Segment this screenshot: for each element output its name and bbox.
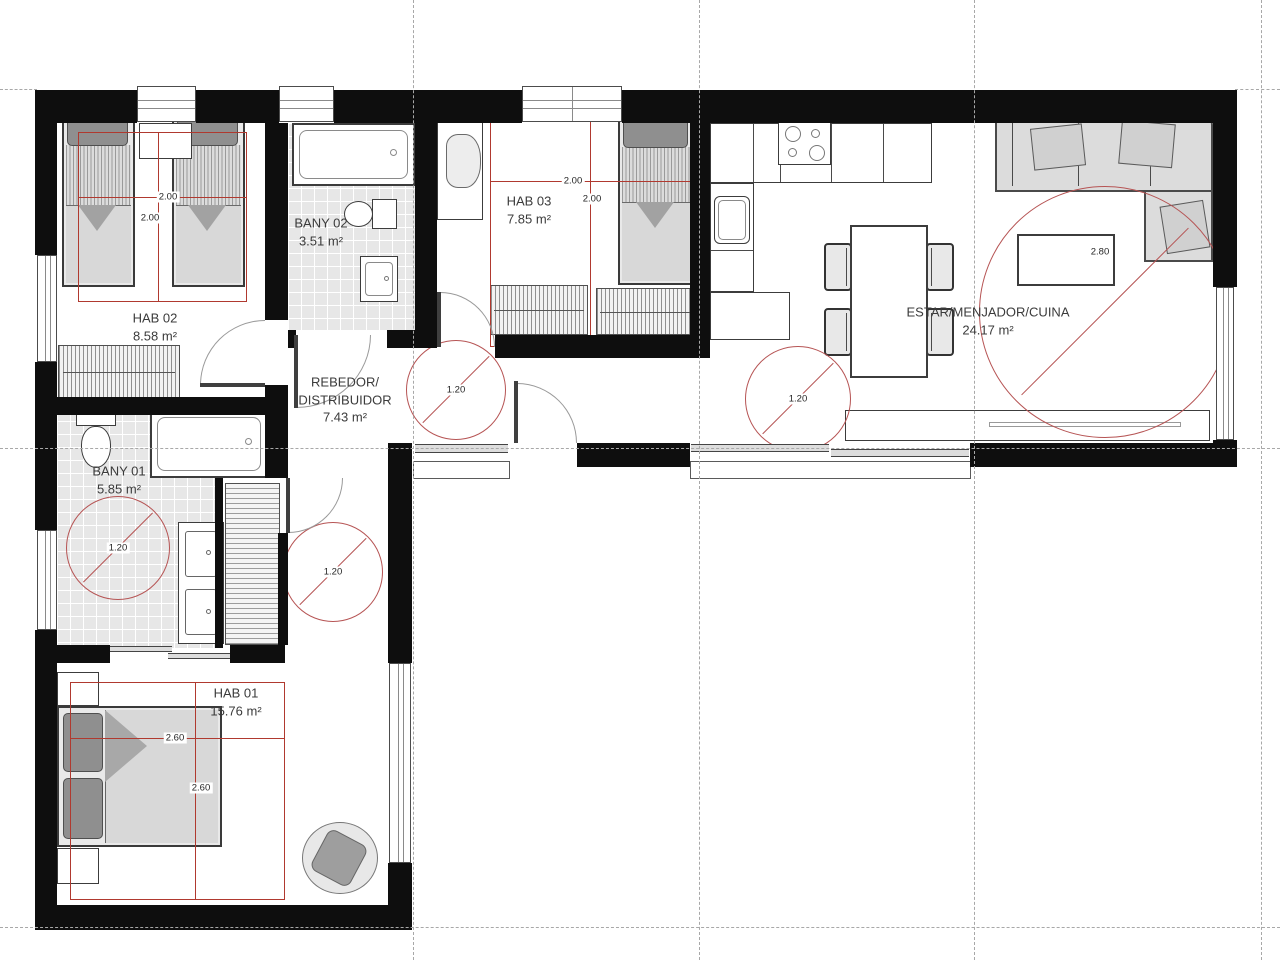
wall-bany01-bottom-1 [35,645,110,663]
window-hab01-right [389,663,411,863]
dining-chair-2 [824,308,852,356]
hab03-name: HAB 03 [507,192,552,210]
wall-top-4 [622,90,1237,123]
wall-hall-closet [278,533,288,645]
wall-left-2 [35,362,57,530]
entry-exterior-sill [413,461,510,479]
wall-right-1 [1213,90,1237,287]
wall-bany02-hab03 [415,123,437,348]
hab03-dim-hline [490,181,700,182]
wall-top-3 [334,90,522,123]
estar-area: 24.17 m² [907,321,1070,339]
sofa-pillow-2 [1118,120,1176,169]
hab01-slider-panel-2 [168,653,230,659]
room-label-estar: ESTAR/MENJADOR/CUINA 24.17 m² [907,303,1070,338]
hab03-door-arc [440,292,495,347]
bany01-area: 5.85 m² [92,480,145,498]
wall-top-2 [196,90,279,123]
room-label-hab03: HAB 03 7.85 m² [507,192,552,227]
floor-plan: HAB 02 8.58 m² BANY 02 3.51 m² HAB 03 7.… [0,0,1280,960]
bany02-area: 3.51 m² [294,232,347,250]
kitchen-sink [714,196,750,244]
bany01-bathtub [150,410,268,478]
wall-bany01-closet [215,478,223,648]
wall-bany02-bottom-2 [387,330,415,348]
hab03-door-leaf [437,292,441,347]
dim-circle-bany01: 1.20 [107,543,130,554]
hab03-desk-chair [446,134,481,188]
window-hab02-top [137,86,196,122]
window-estar-right [1216,287,1234,440]
dim-hab01-width: 2.60 [164,733,187,744]
grid-line-stub-left [0,89,37,90]
hall-closet [225,483,280,645]
room-label-hab02: HAB 02 8.58 m² [133,309,178,344]
room-label-rebedor: REBEDOR/ DISTRIBUIDOR 7.43 m² [298,374,391,427]
wall-hab02-bany02 [265,123,288,320]
bany02-toilet-bowl [344,201,373,227]
bany02-sink [360,256,398,302]
dim-circle-kitchen: 1.20 [787,394,810,405]
rebedor-area: 7.43 m² [298,409,391,427]
window-bany01-left [37,530,57,630]
sofa-main [995,113,1213,192]
wall-bottom-top-wing-2 [970,443,1237,467]
dim-circle-rebedor: 1.20 [445,385,468,396]
sliding-door-panel-2 [831,449,969,457]
wall-hab03-kitchen [690,123,710,335]
dining-chair-3 [926,243,954,291]
grid-line-vertical-2 [699,0,700,960]
window-bany02-top [279,86,334,122]
grid-line-vertical-1 [413,0,414,960]
wall-wing-right-1 [388,443,412,663]
bany02-bathtub [292,123,415,186]
hab03-dim-rect [490,120,700,347]
dining-chair-1 [824,243,852,291]
bany02-door-leaf [294,335,298,408]
rebedor-name-1: REBEDOR/ [298,374,391,392]
wall-bany01-top [57,397,288,415]
hab02-name: HAB 02 [133,309,178,327]
dim-circle-hall: 1.20 [322,567,345,578]
sofa-pillow-1 [1030,123,1086,170]
bany02-toilet-cistern [372,199,397,229]
grid-line-vertical-4 [1261,0,1262,960]
hab03-area: 7.85 m² [507,210,552,228]
wall-hab03-bottom [495,335,710,358]
dining-table [850,225,928,378]
hab02-door-arc [200,320,265,385]
dim-hab03-depth: 2.00 [581,194,604,205]
rebedor-name-2: DISTRIBUIDOR [298,391,391,409]
room-label-bany01: BANY 01 5.85 m² [92,462,145,497]
estar-name: ESTAR/MENJADOR/CUINA [907,303,1070,321]
balcony-exterior-sill [690,461,971,479]
hab01-armchair [302,822,378,894]
dim-hab02-depth: 2.00 [139,213,162,224]
wall-tub-niche [265,415,288,478]
hab02-wardrobe [58,345,180,399]
wall-bottom-top-wing-1 [577,443,690,467]
kitchen-appliance [710,292,790,340]
hab03-dim-vline [590,120,591,347]
dim-hab03-width: 2.00 [562,176,585,187]
hab01-name: HAB 01 [210,684,261,702]
hall-door-leaf [286,478,290,533]
bany01-name: BANY 01 [92,462,145,480]
bany02-name: BANY 02 [294,214,347,232]
grid-line-horizontal-2 [0,927,1280,928]
room-label-hab01: HAB 01 15.76 m² [210,684,261,719]
entry-door-arc [517,383,577,443]
hab01-slider-panel-1 [110,646,172,652]
room-label-bany02: BANY 02 3.51 m² [294,214,347,249]
window-hab03-top [522,86,622,122]
hab02-area: 8.58 m² [133,327,178,345]
grid-line-stub-right [1235,89,1280,90]
wall-bany01-bottom-2 [230,645,285,663]
dim-hab01-depth: 2.60 [190,783,213,794]
grid-line-horizontal-1 [0,448,1280,449]
hab02-door-leaf [200,383,265,387]
grid-line-vertical-3 [974,0,975,960]
hab02-dim-rect [78,132,247,302]
wall-left-3 [35,630,57,905]
dim-hab02-width: 2.00 [157,192,180,203]
dim-circle-living: 2.80 [1089,247,1112,258]
wall-left-1 [35,90,57,255]
window-hab02-left [37,255,57,362]
hab01-area: 15.76 m² [210,702,261,720]
entry-door-leaf [514,381,518,443]
kitchen-cooktop [778,120,831,165]
